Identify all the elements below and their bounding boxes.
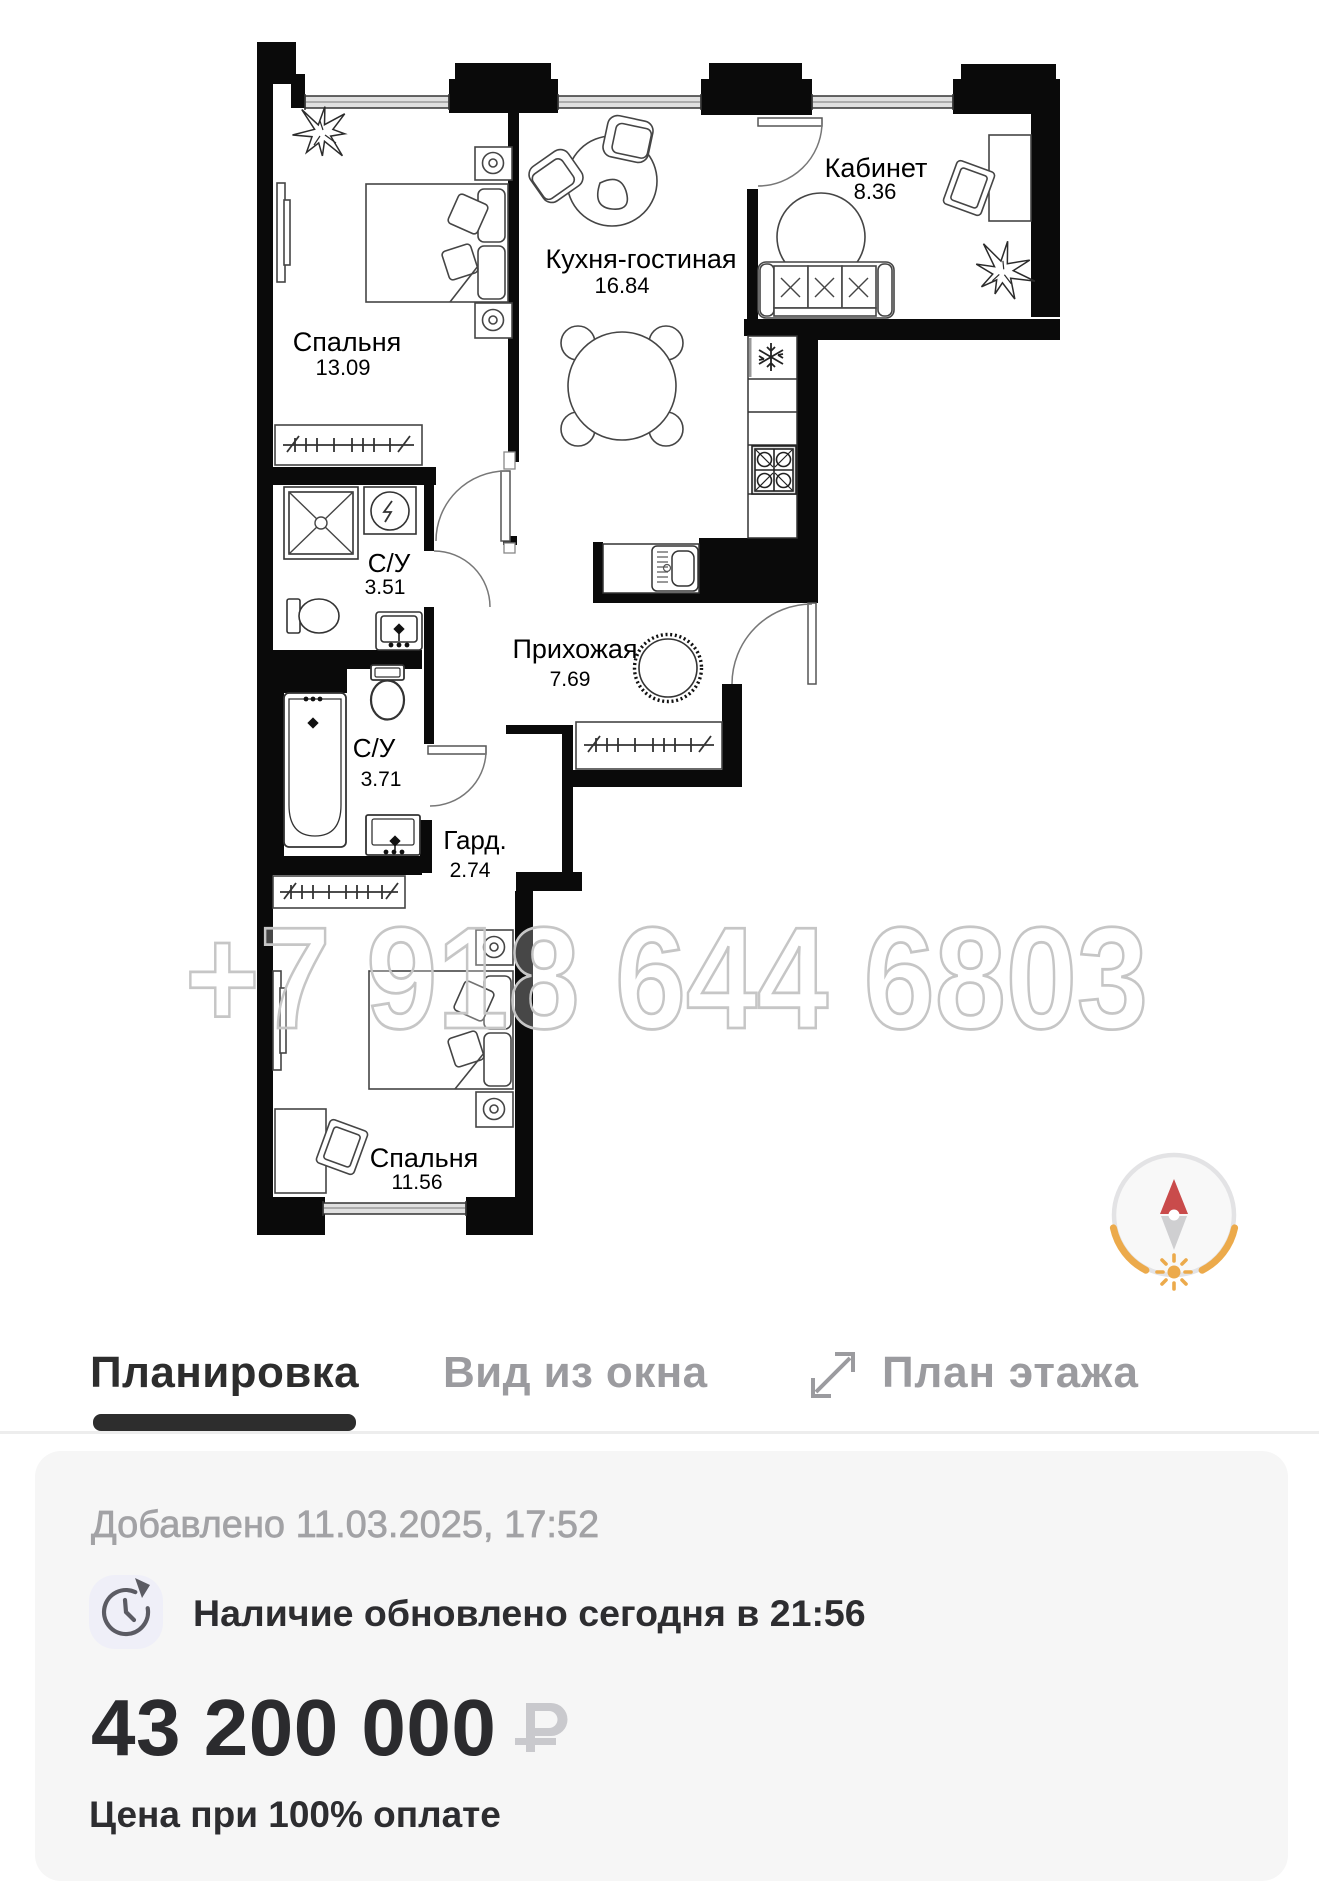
svg-text:43 200 000: 43 200 000 bbox=[91, 1683, 496, 1772]
svg-text:8.36: 8.36 bbox=[854, 179, 897, 204]
svg-text:Наличие обновлено сегодня в 21: Наличие обновлено сегодня в 21:56 bbox=[193, 1592, 866, 1634]
svg-text:Прихожая: Прихожая bbox=[512, 634, 637, 664]
svg-text:Планировка: Планировка bbox=[90, 1348, 359, 1397]
svg-text:С/У: С/У bbox=[353, 733, 396, 763]
svg-text:+7 918 644 6803: +7 918 644 6803 bbox=[185, 897, 1148, 1059]
svg-text:Спальня: Спальня bbox=[370, 1143, 479, 1173]
svg-text:3.71: 3.71 bbox=[361, 768, 402, 791]
svg-text:Вид из окна: Вид из окна bbox=[443, 1348, 708, 1397]
svg-text:Спальня: Спальня bbox=[293, 327, 402, 357]
svg-text:Добавлено 11.03.2025, 17:52: Добавлено 11.03.2025, 17:52 bbox=[91, 1504, 599, 1546]
svg-text:Цена при 100% оплате: Цена при 100% оплате bbox=[89, 1794, 501, 1835]
svg-text:11.56: 11.56 bbox=[392, 1171, 443, 1194]
svg-text:План этажа: План этажа bbox=[882, 1348, 1139, 1397]
svg-text:С/У: С/У bbox=[368, 548, 411, 578]
svg-text:7.69: 7.69 bbox=[550, 668, 591, 691]
svg-text:3.51: 3.51 bbox=[365, 576, 406, 599]
svg-text:13.09: 13.09 bbox=[315, 355, 370, 380]
svg-text:16.84: 16.84 bbox=[594, 273, 649, 298]
svg-text:2.74: 2.74 bbox=[450, 859, 491, 882]
svg-text:Кухня-гостиная: Кухня-гостиная bbox=[545, 244, 736, 274]
svg-text:Гард.: Гард. bbox=[443, 825, 506, 855]
